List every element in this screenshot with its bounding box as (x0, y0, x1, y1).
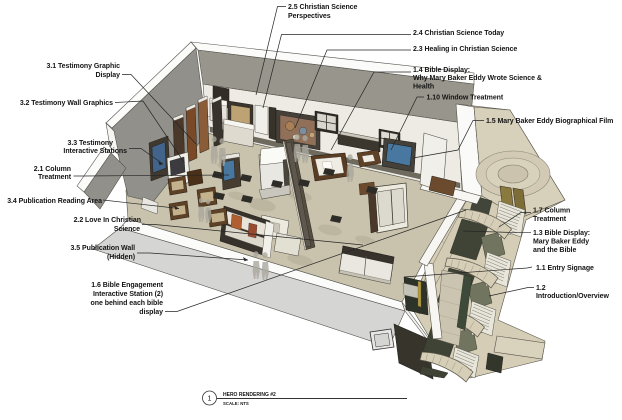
svg-text:1.10 Window Treatment: 1.10 Window Treatment (427, 95, 504, 102)
svg-text:Interactive Stations: Interactive Stations (63, 148, 127, 155)
svg-text:1.2: 1.2 (536, 285, 546, 292)
svg-text:Treatment: Treatment (38, 174, 72, 181)
svg-text:and the Bible: and the Bible (533, 247, 576, 254)
svg-text:2.1 Column: 2.1 Column (34, 166, 71, 173)
svg-text:Treatment: Treatment (533, 216, 567, 223)
svg-text:display: display (139, 309, 163, 316)
svg-text:1.6 Bible Engagement: 1.6 Bible Engagement (91, 282, 163, 289)
svg-text:1.4 Bible Display:: 1.4 Bible Display: (413, 67, 470, 74)
svg-text:2.5 Christian Science: 2.5 Christian Science (288, 4, 358, 11)
svg-text:3.1 Testimony Graphic: 3.1 Testimony Graphic (46, 63, 120, 70)
svg-text:one behind each bible: one behind each bible (91, 300, 164, 307)
svg-text:1.7 Column: 1.7 Column (533, 208, 570, 215)
svg-text:Science: Science (114, 226, 140, 233)
svg-text:(Hidden): (Hidden) (107, 254, 135, 261)
svg-text:Why Mary Baker Eddy Wrote Scie: Why Mary Baker Eddy Wrote Science & (413, 75, 542, 82)
svg-text:HERO RENDERING #2: HERO RENDERING #2 (223, 392, 276, 398)
svg-text:3.2 Testimony Wall Graphics: 3.2 Testimony Wall Graphics (20, 100, 113, 107)
svg-text:1: 1 (208, 396, 212, 403)
svg-text:SCALE: NTS: SCALE: NTS (223, 401, 249, 406)
svg-text:1.1 Entry Signage: 1.1 Entry Signage (536, 265, 594, 272)
svg-text:Introduction/Overview: Introduction/Overview (536, 293, 609, 300)
svg-text:3.3 Testimony: 3.3 Testimony (67, 140, 113, 147)
svg-text:3.5 Publication Wall: 3.5 Publication Wall (71, 245, 136, 252)
svg-text:Display: Display (95, 72, 120, 79)
svg-text:Interactive Station (2): Interactive Station (2) (93, 291, 163, 298)
svg-text:Perspectives: Perspectives (288, 13, 331, 20)
svg-text:2.2 Love In Christian: 2.2 Love In Christian (74, 217, 141, 224)
svg-text:2.3 Healing in Christian Scien: 2.3 Healing in Christian Science (413, 46, 517, 53)
svg-text:1.3 Bible Display:: 1.3 Bible Display: (533, 230, 590, 237)
svg-text:2.4 Christian Science Today: 2.4 Christian Science Today (413, 30, 504, 37)
svg-text:1.5 Mary Baker Eddy Biographic: 1.5 Mary Baker Eddy Biographical Film (486, 118, 613, 125)
svg-text:3.4 Publication Reading Area: 3.4 Publication Reading Area (7, 198, 102, 205)
svg-text:Mary Baker Eddy: Mary Baker Eddy (533, 239, 589, 246)
svg-text:Health: Health (413, 84, 434, 91)
